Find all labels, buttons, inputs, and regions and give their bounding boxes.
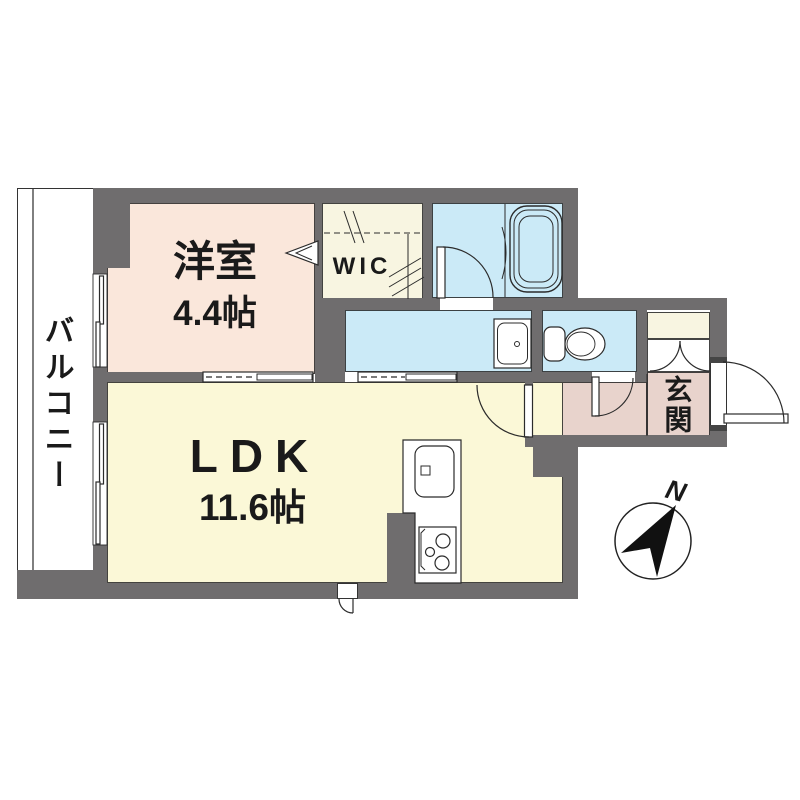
washbasin <box>494 319 531 368</box>
gas-stove <box>419 527 456 573</box>
ldk-label: LDK <box>175 432 335 480</box>
north-compass <box>615 503 691 579</box>
yoshitsu-label: 洋室 <box>130 240 300 284</box>
toilet-door <box>592 377 633 416</box>
kitchen-sink <box>415 446 454 497</box>
ldk-size: 11.6帖 <box>170 489 335 528</box>
shoe-cabinet-doors <box>650 341 710 371</box>
window-ldk-balcony <box>93 422 107 545</box>
kitchen-counter <box>403 440 461 583</box>
ldk-bottom-door <box>339 599 353 613</box>
yoshitsu-size: 4.4帖 <box>130 296 300 333</box>
bathtub <box>502 204 562 297</box>
sliding-door-ldk-washroom <box>358 372 457 382</box>
bathroom-door <box>437 247 493 298</box>
floor-plan: 洋室 4.4帖 WIC LDK 11.6帖 玄関 バルコニー N <box>0 0 800 800</box>
sliding-door-yoshitsu-ldk <box>203 372 313 382</box>
wic-label: WIC <box>322 254 402 279</box>
balcony-label: バルコニー <box>40 297 72 512</box>
window-yoshitsu-balcony <box>93 274 107 367</box>
ldk-hallway-door <box>477 385 533 437</box>
toilet-fixture <box>544 327 605 361</box>
entrance-door <box>710 357 788 431</box>
genkan-label: 玄関 <box>662 374 691 436</box>
